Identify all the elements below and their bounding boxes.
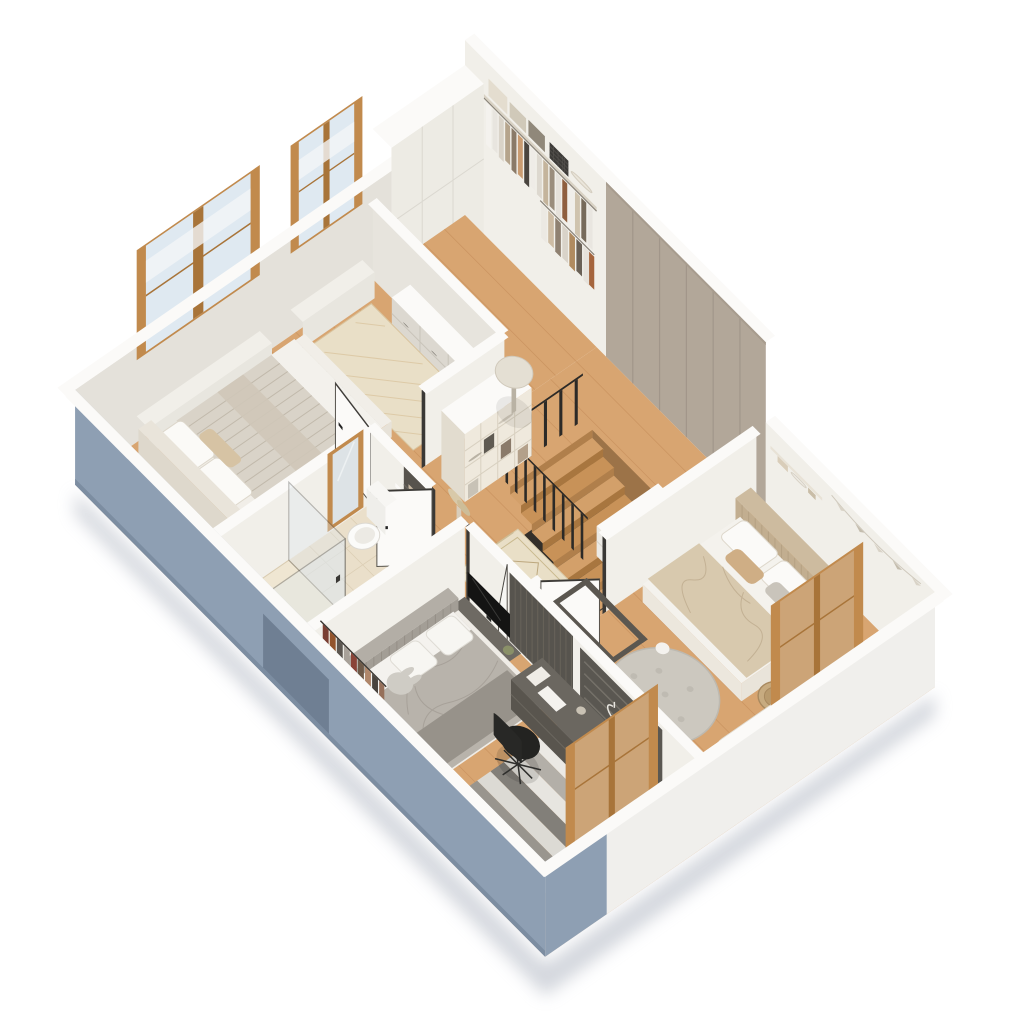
floor-plan-stage xyxy=(0,0,1024,1024)
floor-plan-render xyxy=(0,0,1024,1024)
